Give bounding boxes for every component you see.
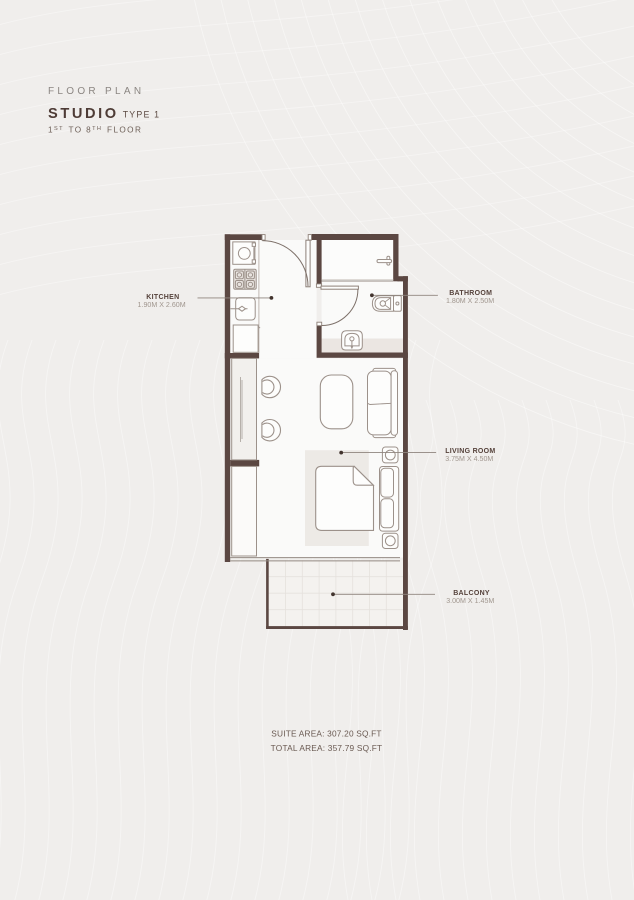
- svg-text:BALCONY: BALCONY: [453, 590, 490, 597]
- svg-text:3.00M X 1.45M: 3.00M X 1.45M: [446, 597, 494, 605]
- svg-text:3.75M X 4.50M: 3.75M X 4.50M: [445, 455, 493, 463]
- svg-text:FLOOR PLAN: FLOOR PLAN: [48, 86, 144, 97]
- svg-text:LIVING ROOM: LIVING ROOM: [445, 448, 495, 455]
- svg-text:BATHROOM: BATHROOM: [449, 290, 492, 297]
- svg-text:KITCHEN: KITCHEN: [146, 294, 179, 301]
- svg-text:1.80M X 2.50M: 1.80M X 2.50M: [446, 297, 494, 305]
- svg-text:SUITE AREA: 307.20 SQ.FT: SUITE AREA: 307.20 SQ.FT: [271, 728, 381, 738]
- svg-text:1.90M X 2.60M: 1.90M X 2.60M: [138, 301, 186, 309]
- svg-text:TOTAL AREA: 357.79 SQ.FT: TOTAL AREA: 357.79 SQ.FT: [271, 743, 383, 753]
